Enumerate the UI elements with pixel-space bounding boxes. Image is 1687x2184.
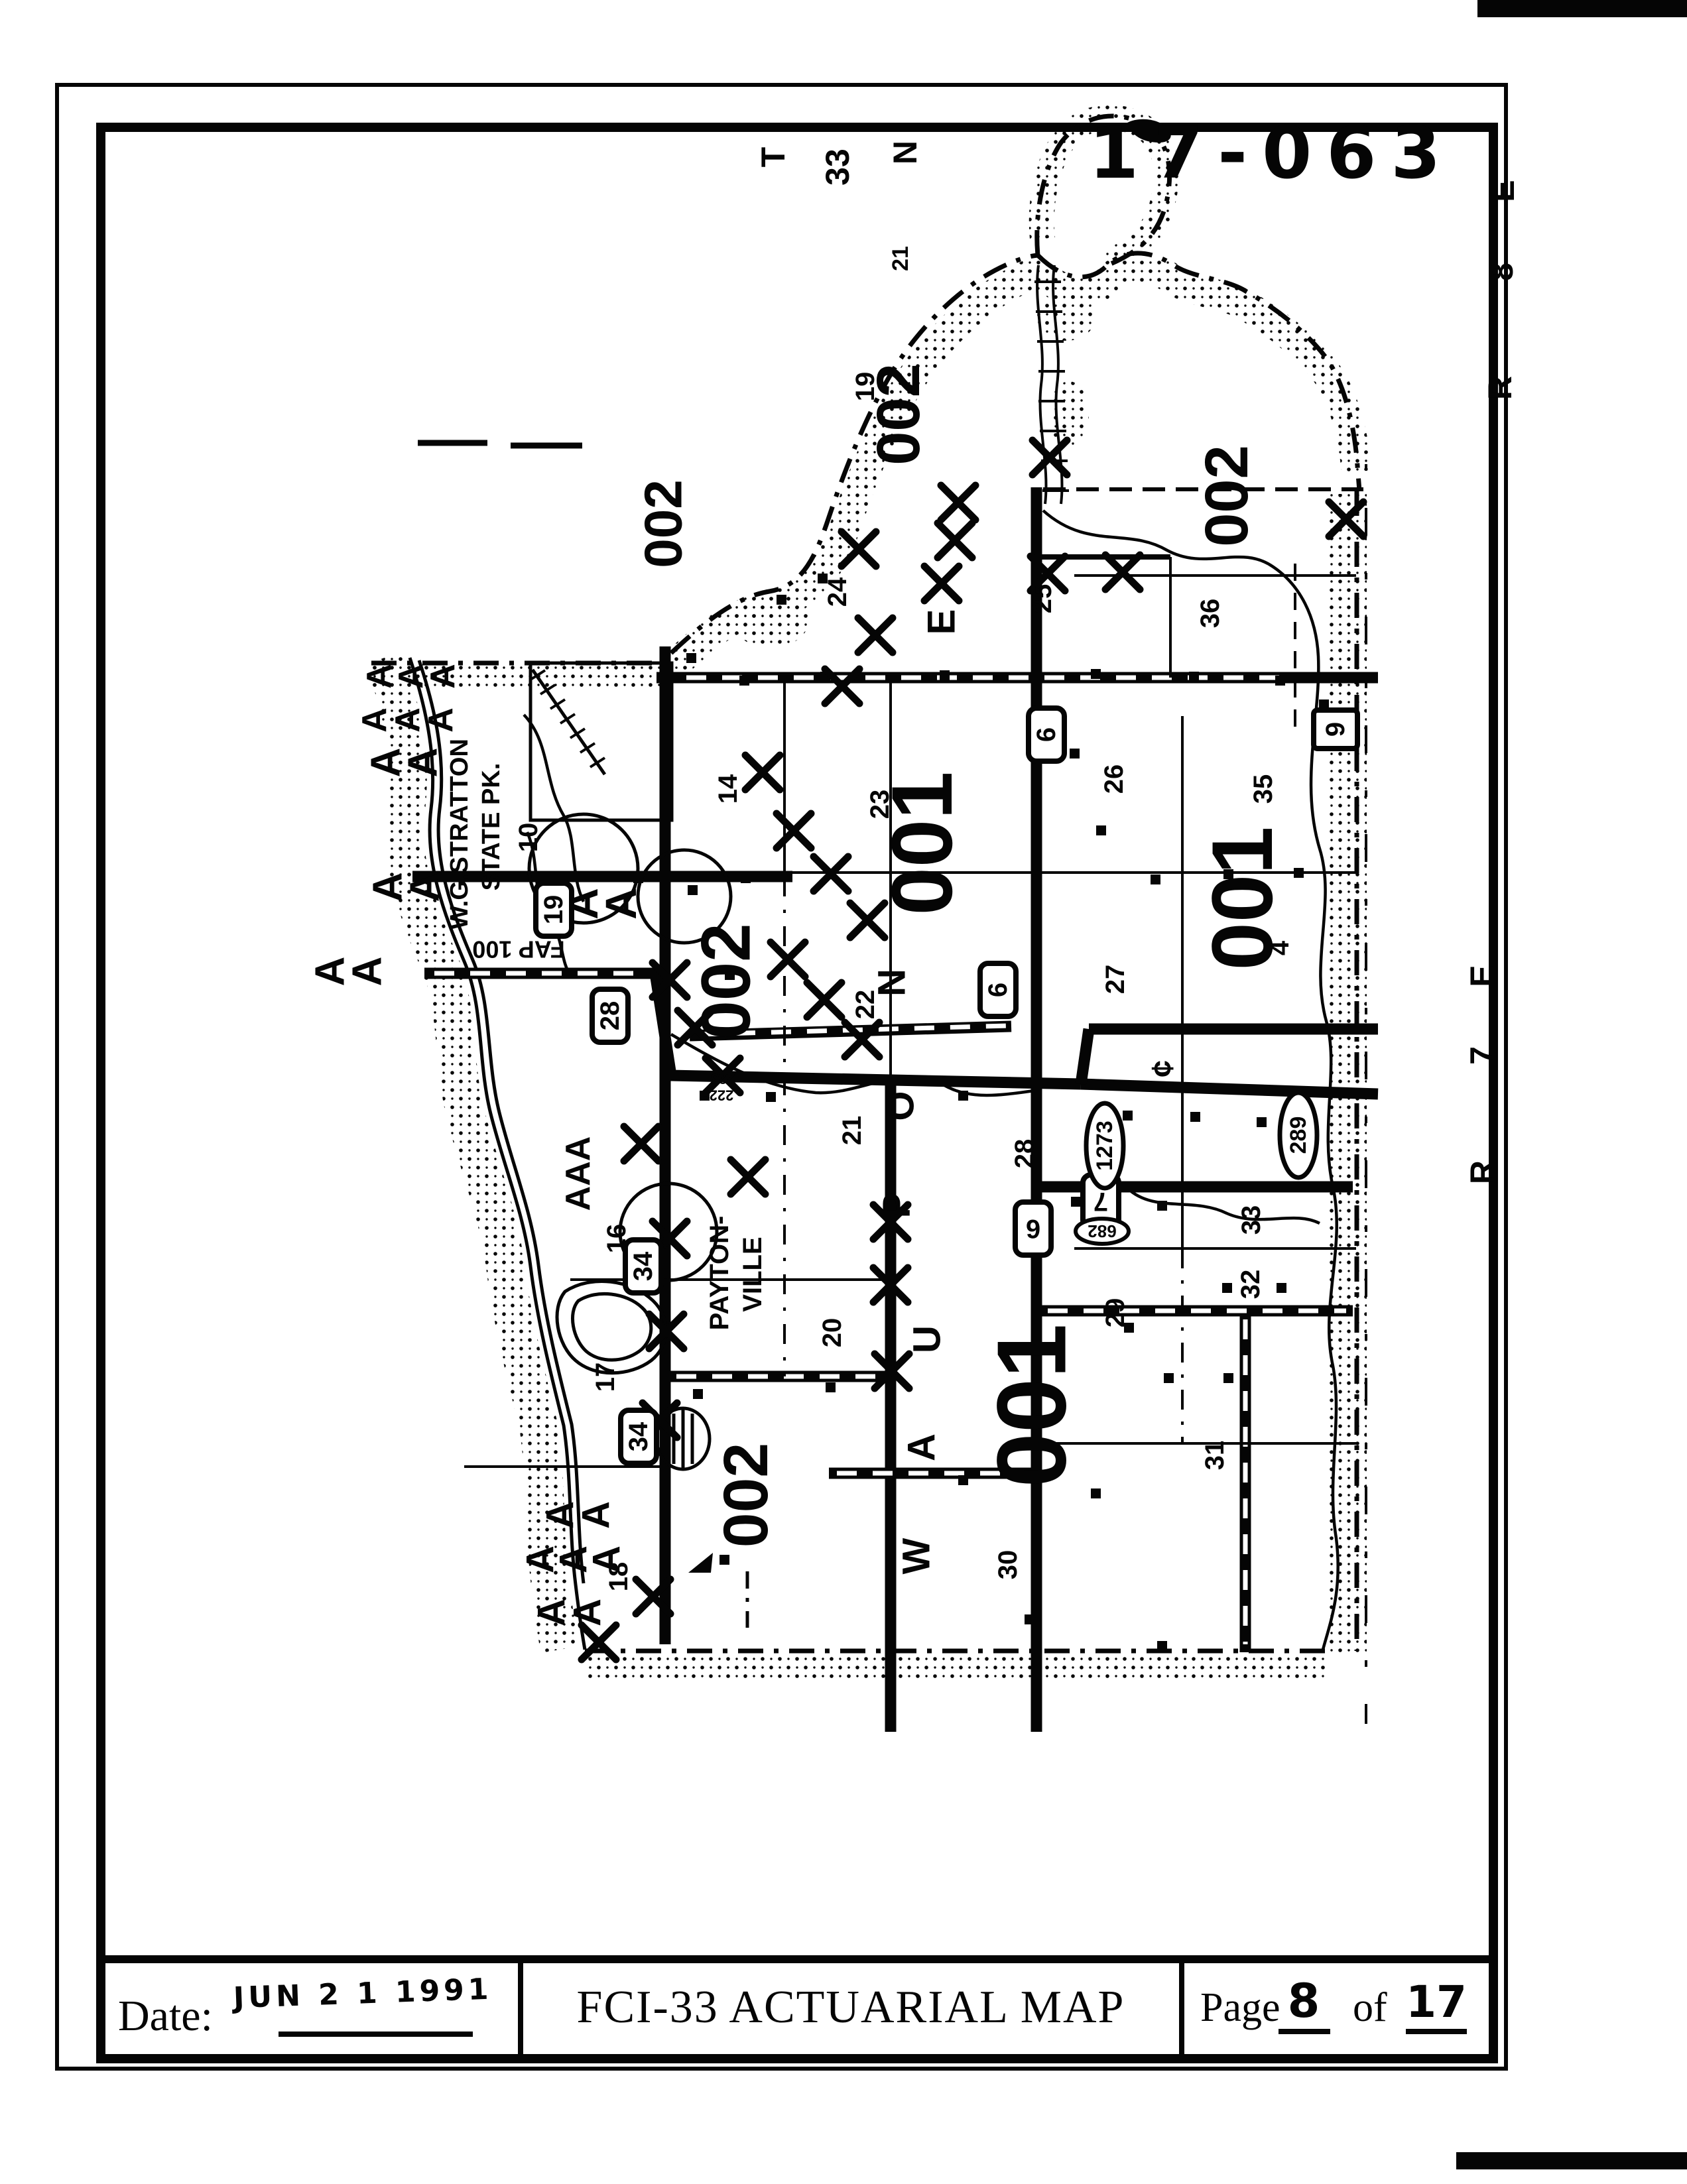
route-shield-6: 6: [1015, 1202, 1051, 1255]
structure-dot: [1025, 1614, 1034, 1624]
section-number: 35: [1249, 774, 1278, 804]
section-number: 33: [1237, 1205, 1266, 1235]
structure-dot: [1190, 1112, 1200, 1122]
route-shield-1273: 1273: [1086, 1103, 1123, 1188]
section-number: 18: [604, 1562, 633, 1592]
route-shield-6: 6: [1029, 708, 1064, 761]
route-shield-289: 289: [1280, 1093, 1317, 1178]
structure-dot: [777, 595, 786, 605]
structure-dot: [1123, 1111, 1133, 1121]
section-number: 14: [714, 774, 743, 804]
structure-dot: [1277, 1283, 1286, 1293]
route-shield-28: 28: [592, 989, 628, 1042]
structure-dot: [686, 653, 696, 663]
zone-letter: A: [345, 957, 391, 987]
route-shield-label: 682: [1088, 1221, 1116, 1241]
page-number: 8: [1288, 1974, 1320, 2028]
route-shield-682: 682: [1076, 1219, 1129, 1244]
zone-letter: A: [596, 888, 645, 920]
zone-label: AAA: [559, 1136, 597, 1211]
zone-letter: A: [575, 1501, 618, 1529]
route-shield-label: 19: [539, 895, 568, 925]
structure-dot: [1157, 1641, 1167, 1651]
campground-triangle-icon: [688, 1553, 713, 1573]
route-shield-label: 34: [624, 1422, 653, 1451]
township-name-letter: N: [871, 969, 914, 997]
scanned-actuarial-map-page: 002002002002002001001001AAA4 AAAAAAAAAAA…: [0, 0, 1687, 2184]
structure-dot: [1157, 1201, 1167, 1211]
edge-label: E: [1484, 180, 1521, 202]
x-mark: [1032, 440, 1067, 475]
x-mark: [624, 1126, 658, 1161]
page-label: Page: [1200, 1985, 1281, 2030]
section-number: 20: [818, 1318, 847, 1348]
structure-dot: [1071, 1197, 1081, 1207]
edge-label: 8: [1483, 263, 1520, 281]
zone-label: 002: [711, 1443, 781, 1548]
zone-letter: A: [566, 1599, 609, 1626]
map-canvas: 002002002002002001001001AAA4 AAAAAAAAAAA…: [0, 0, 1687, 2184]
x-mark: [771, 942, 805, 977]
structure-dot: [739, 676, 749, 686]
section-number: 27: [1101, 965, 1130, 995]
route-shield-label: 9: [1321, 722, 1350, 737]
section-number: 21: [838, 1116, 867, 1146]
x-mark: [731, 1160, 765, 1194]
structure-dot: [719, 1555, 729, 1565]
section-number: 31: [1200, 1441, 1229, 1471]
zone-letter: A: [422, 707, 460, 733]
place-label: STATE PK.: [477, 763, 505, 891]
township-name-letter: O: [879, 1091, 922, 1121]
place-label: PAYTON-: [705, 1216, 734, 1331]
section-number: 26: [1099, 764, 1129, 794]
township-name-letter: U: [906, 1325, 949, 1353]
place-label: W.G.STRATTON: [446, 739, 473, 930]
x-mark: [745, 755, 780, 790]
township-name-letter: W: [895, 1538, 938, 1574]
section-number: 21: [888, 246, 913, 271]
x-mark: [941, 485, 975, 520]
x-mark: [777, 814, 811, 848]
edge-label: N: [887, 141, 924, 164]
of-label: of: [1353, 1985, 1387, 2030]
section-number: 25: [1028, 584, 1057, 614]
structure-dot: [766, 1092, 776, 1102]
x-mark: [858, 618, 893, 652]
edge-label: E: [1464, 965, 1501, 987]
date-stamp: JUN 2 1 1991: [231, 1972, 493, 2016]
structure-dot: [1257, 1117, 1267, 1127]
x-mark: [1105, 555, 1140, 589]
structure-dot: [1223, 1373, 1233, 1383]
structure-dot: [1091, 1488, 1101, 1498]
zone-letter: A: [401, 748, 446, 778]
zone-label: 002: [634, 479, 693, 568]
township-name-letter: A: [901, 1433, 944, 1461]
section-number: 30: [993, 1550, 1023, 1580]
page-total: 17: [1406, 1976, 1467, 2028]
structure-dot: [1091, 669, 1101, 679]
section-number: 17: [591, 1363, 620, 1392]
route-shield-label: 7: [1093, 1187, 1108, 1216]
x-mark: [807, 983, 842, 1017]
zone-letter: A: [403, 873, 448, 902]
structure-dot: [741, 873, 751, 883]
structure-dot: [826, 1382, 836, 1392]
route-shield-9: 9: [1314, 710, 1357, 749]
structure-dot: [1294, 868, 1304, 878]
zone-letter: A: [424, 664, 462, 689]
map-title: FCI-33 ACTUARIAL MAP: [577, 1982, 1125, 2033]
place-label: 10: [514, 823, 543, 853]
zone-label: 001: [977, 1324, 1087, 1488]
place-label: 222: [710, 1087, 734, 1104]
route-shield-6: 6: [980, 963, 1016, 1016]
section-number: 28: [1010, 1139, 1039, 1169]
structure-dot: [940, 670, 950, 680]
section-number: 32: [1236, 1270, 1265, 1300]
route-shield-label: 34: [629, 1251, 658, 1281]
route-shield-label: 28: [595, 1001, 625, 1031]
place-label: ¢: [1145, 1060, 1180, 1077]
route-shield-34: 34: [621, 1410, 656, 1463]
zone-label: 002: [1193, 445, 1261, 547]
edge-label: R: [1481, 376, 1519, 400]
structure-dot: [1096, 825, 1106, 835]
place-label: 223: [711, 1071, 735, 1087]
zone-label: 002: [688, 923, 765, 1039]
map-number: 17-063: [1089, 112, 1456, 195]
date-label: Date:: [118, 1992, 213, 2040]
edge-label: 33: [819, 149, 856, 186]
title-bar: Date: JUN 2 1 1991 FCI-33 ACTUARIAL MAP …: [101, 1959, 1493, 2057]
structure-dot: [958, 1091, 968, 1101]
x-mark: [938, 523, 972, 558]
section-number: 29: [1101, 1298, 1130, 1328]
place-label: VILLE: [738, 1237, 767, 1311]
section-number: 36: [1196, 599, 1225, 629]
structure-dot: [1222, 1283, 1232, 1293]
section-number: 23: [865, 790, 895, 819]
structure-dot: [958, 1475, 968, 1485]
route-shield-34: 34: [625, 1240, 661, 1293]
route-shield-label: 6: [983, 983, 1013, 997]
section-number: 19: [851, 372, 880, 402]
edge-label: T: [755, 147, 792, 168]
township-name-letter: P: [875, 1193, 918, 1219]
structure-dot: [688, 885, 698, 895]
structure-dot: [1070, 749, 1080, 758]
structure-dot: [693, 1389, 703, 1399]
township-name-letters: ENOPUAW: [871, 609, 964, 1575]
edge-label: R: [1464, 1160, 1501, 1184]
place-label: FAP 100: [472, 936, 564, 963]
route-shield-label: 6: [1032, 727, 1061, 742]
structure-dot: [633, 873, 643, 883]
structure-dot: [1164, 1373, 1174, 1383]
route-shield-19: 19: [536, 883, 572, 936]
x-mark: [924, 566, 959, 601]
structure-dot: [1275, 676, 1285, 686]
zone-label: 4: [1265, 940, 1294, 955]
structure-dot: [1189, 672, 1199, 682]
route-shield-label: 6: [1026, 1214, 1040, 1243]
structure-dot: [1151, 875, 1160, 884]
edge-label: 7: [1464, 1046, 1501, 1065]
route-shield-label: 1273: [1092, 1121, 1117, 1171]
route-shield-label: 289: [1286, 1117, 1311, 1154]
township-name-letter: E: [920, 609, 964, 635]
section-number: 24: [823, 577, 852, 607]
